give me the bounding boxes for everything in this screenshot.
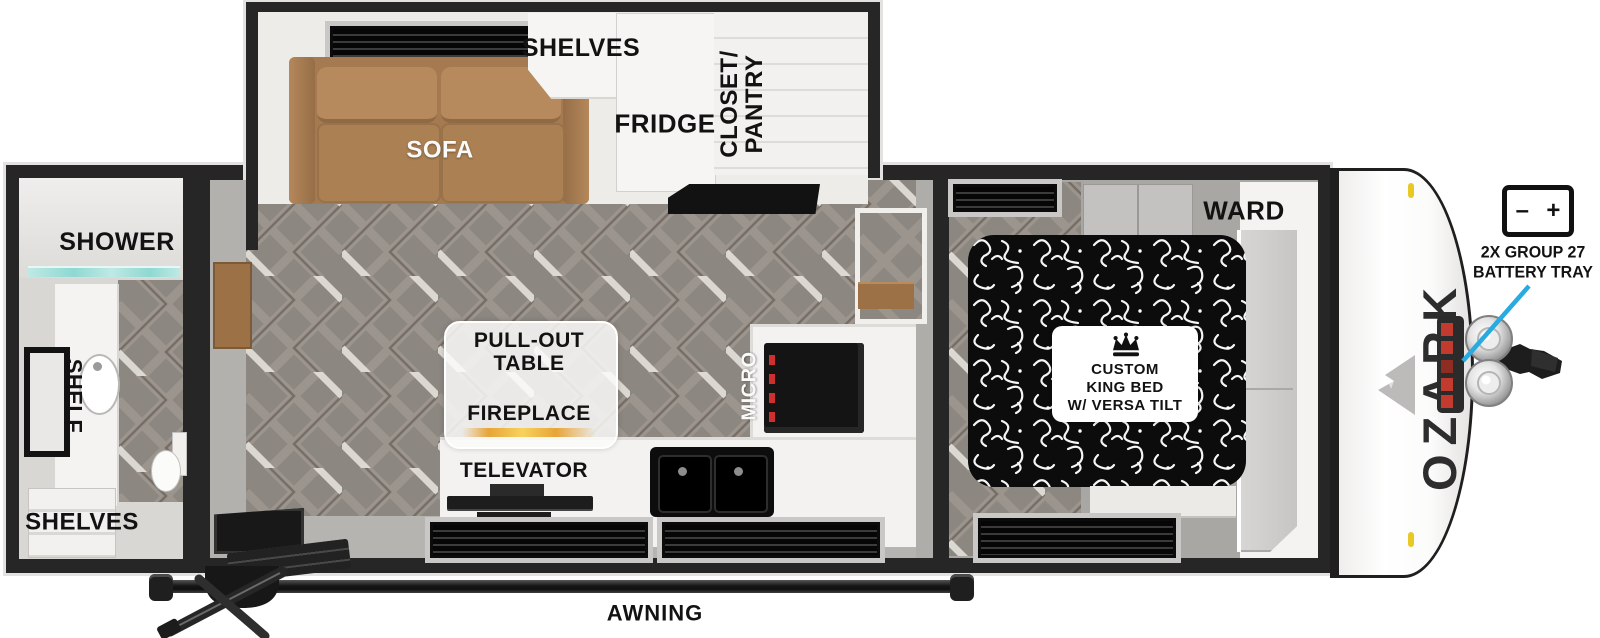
- battery-plus: +: [1546, 197, 1560, 225]
- marker-light-top: [1408, 183, 1414, 198]
- pullout-line2: TABLE: [494, 352, 565, 375]
- mountain-logo: [1374, 353, 1416, 417]
- bed-badge-text: CUSTOM KING BED W/ VERSA TILT: [1068, 361, 1183, 415]
- slideout-window: [330, 26, 552, 60]
- battery-icon: – +: [1502, 185, 1574, 237]
- bed-line2: KING BED: [1086, 379, 1163, 396]
- brand-logo-text: OZARK: [1416, 279, 1463, 491]
- front-cap-brand: OZARK: [1363, 235, 1473, 535]
- awning-roller-bar: [163, 580, 958, 593]
- closet-pantry-line1: CLOSET/: [716, 50, 743, 158]
- shower-glass-shelf: [28, 266, 180, 277]
- sofa-arm-left: [289, 57, 315, 204]
- battery-minus: –: [1516, 197, 1529, 225]
- bedroom-overhead-cabinet: [1083, 184, 1193, 242]
- wall-desk: [213, 262, 252, 349]
- sink-basin-right: [714, 455, 768, 513]
- sink-faucet-right: [734, 467, 743, 476]
- stove-knob-2: [769, 374, 775, 384]
- awning-label: AWNING: [607, 601, 703, 624]
- bed-foot-bench: [1090, 486, 1236, 516]
- sofa-label: SOFA: [406, 137, 473, 162]
- sink-faucet-left: [678, 467, 687, 476]
- closet-pantry-line2: PANTRY: [741, 55, 768, 154]
- bed-line3: W/ VERSA TILT: [1068, 397, 1183, 414]
- battery-line1: 2X GROUP 27: [1481, 242, 1586, 261]
- televator-tv-base: [477, 512, 551, 519]
- pullout-line1: PULL-OUT: [474, 329, 584, 352]
- bedroom-top-window: [953, 184, 1057, 212]
- kitchen-sink: [650, 447, 774, 517]
- battery-tray-label: 2X GROUP 27 BATTERY TRAY: [1473, 242, 1593, 281]
- stove-micro-unit: [764, 343, 864, 433]
- televator-tv-top: [490, 484, 544, 496]
- niche-wood-shelf: [858, 282, 914, 309]
- shower-label: SHOWER: [59, 229, 175, 255]
- awning-endcap-right: [950, 574, 974, 601]
- televator-label: TELEVATOR: [460, 460, 588, 482]
- fridge-label: FRIDGE: [614, 110, 715, 137]
- battery-line2: BATTERY TRAY: [1473, 262, 1593, 281]
- shelf-label: SHELF: [62, 359, 85, 434]
- stove-knob-1: [769, 355, 775, 365]
- marker-light-bottom: [1408, 532, 1414, 547]
- televator-tv-bar: [447, 496, 593, 509]
- stove-knob-4: [769, 412, 775, 422]
- micro-label: MICRO: [740, 351, 761, 420]
- bedroom-partition-wall: [933, 180, 949, 558]
- slideout-shelves-label: SHELVES: [522, 35, 640, 61]
- fridge-counter: [668, 184, 820, 214]
- living-window-left: [430, 522, 648, 558]
- sink-basin-left: [658, 455, 712, 513]
- wardrobe-cabinet: [1237, 230, 1297, 552]
- toilet-bowl: [151, 450, 181, 492]
- fireplace-label: FIREPLACE: [467, 403, 591, 425]
- sofa-back-cushion-left: [317, 67, 437, 123]
- floorplan-canvas: SHOWER SHELF SHELVES SOFA SHELVES FRIDGE…: [0, 0, 1600, 638]
- slideout-side-wall: [246, 172, 258, 250]
- ward-label: WARD: [1203, 197, 1284, 224]
- pullout-table-label: PULL-OUT TABLE: [474, 329, 584, 375]
- bedroom-bottom-window: [978, 518, 1176, 558]
- crown-icon: [1108, 332, 1144, 358]
- closet-pantry-label: CLOSET/ PANTRY: [717, 50, 767, 158]
- bed-line1: CUSTOM: [1091, 361, 1159, 378]
- stove-knob-3: [769, 393, 775, 403]
- awning-endcap-left: [149, 574, 173, 601]
- entry-wall-strip: [210, 180, 246, 558]
- bath-shelves-label: SHELVES: [25, 509, 139, 534]
- fireplace-flame: [462, 428, 596, 437]
- living-window-right: [662, 522, 880, 558]
- sink-faucet: [93, 362, 102, 371]
